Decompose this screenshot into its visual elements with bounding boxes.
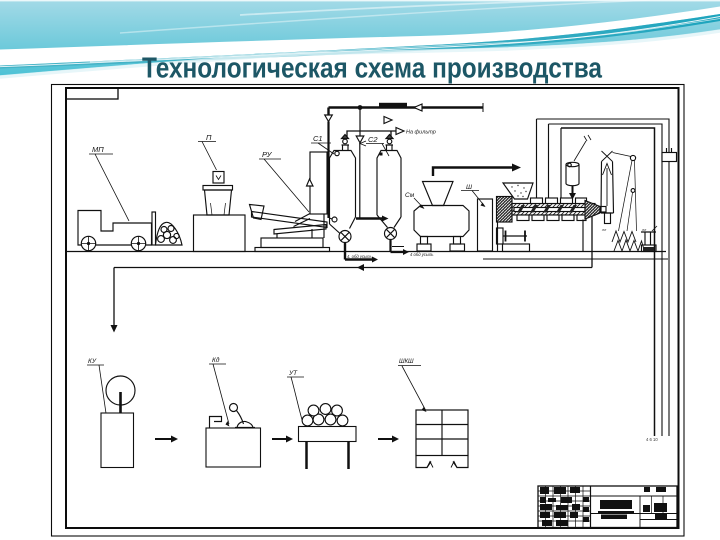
svg-text:С2: С2 — [368, 135, 378, 144]
svg-text:КУ: КУ — [88, 358, 97, 365]
svg-text:На фильтр: На фильтр — [406, 130, 436, 136]
svg-text:лл: лл — [641, 228, 647, 232]
svg-text:С1: С1 — [313, 134, 323, 143]
svg-text:4 6 10: 4 6 10 — [646, 437, 658, 442]
svg-text:Технологическая схема производ: Технологическая схема производства — [142, 53, 603, 85]
svg-text:Кд: Кд — [212, 356, 220, 364]
svg-text:УТ: УТ — [288, 370, 298, 377]
svg-text:ШКШ: ШКШ — [399, 359, 414, 365]
svg-text:МП: МП — [92, 145, 104, 154]
svg-text:лл: лл — [601, 228, 607, 232]
svg-text:П: П — [206, 133, 212, 142]
svg-text:4. обд усыпь: 4. обд усыпь — [347, 254, 372, 259]
svg-text:РУ: РУ — [262, 150, 273, 159]
svg-text:См: См — [405, 192, 415, 199]
svg-text:4 обд усыпь: 4 обд усыпь — [410, 252, 433, 257]
svg-text:Ш: Ш — [466, 184, 472, 191]
